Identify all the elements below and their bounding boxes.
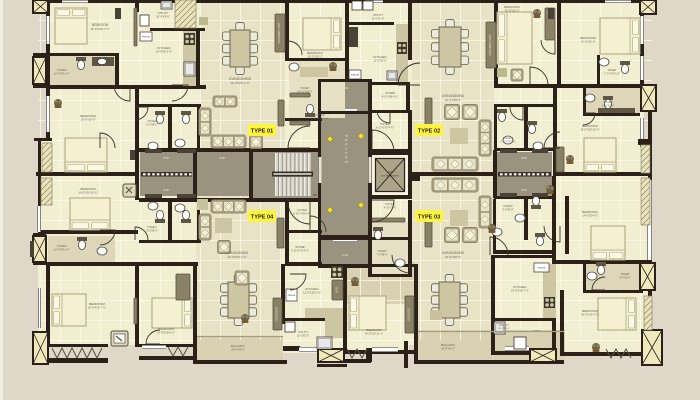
svg-text:6'-10 ½"X6'-4 ½": 6'-10 ½"X6'-4 ½": [293, 211, 311, 215]
svg-text:TYPE 04: TYPE 04: [251, 215, 274, 221]
svg-text:4'-3 ½"X6'-4 ½": 4'-3 ½"X6'-4 ½": [382, 94, 399, 98]
svg-text:TOILET: TOILET: [607, 68, 617, 72]
svg-text:TYPE 02: TYPE 02: [418, 129, 440, 135]
svg-text:16'-6"X10'-10 ½": 16'-6"X10'-10 ½": [78, 191, 97, 195]
svg-text:UTILITY: UTILITY: [298, 330, 309, 334]
svg-text:11'-0"X10'-2 ½": 11'-0"X10'-2 ½": [303, 291, 321, 295]
svg-text:16'-8"X10'-0 ½": 16'-8"X10'-0 ½": [157, 331, 175, 335]
svg-text:BEDROOM: BEDROOM: [89, 302, 105, 306]
svg-text:VOID: VOID: [521, 156, 527, 160]
svg-text:KITCHEN: KITCHEN: [513, 285, 526, 289]
svg-text:14'-0"X11'-3": 14'-0"X11'-3": [505, 9, 520, 13]
svg-text:10'-6"X10'-7 ½": 10'-6"X10'-7 ½": [511, 289, 529, 293]
svg-text:16'-4"X20'-0": 16'-4"X20'-0": [445, 98, 461, 102]
svg-text:HOB: HOB: [335, 287, 339, 293]
svg-text:16'-6"X10'-7 ½": 16'-6"X10'-7 ½": [90, 27, 109, 31]
svg-text:5'-3"X8'-0": 5'-3"X8'-0": [146, 123, 157, 126]
svg-text:16'-0"X10'-10 ½": 16'-0"X10'-10 ½": [580, 128, 599, 132]
svg-text:BEDROOM: BEDROOM: [158, 327, 174, 331]
svg-text:TOILET: TOILET: [503, 204, 513, 208]
svg-text:5'-3"X8'-0": 5'-3"X8'-0": [146, 229, 157, 232]
svg-text:FRIDGE: FRIDGE: [288, 295, 296, 297]
svg-text:KITCHEN: KITCHEN: [157, 46, 170, 50]
svg-text:7'-6"X8'-0": 7'-6"X8'-0": [376, 253, 387, 256]
svg-text:FOYER: FOYER: [380, 122, 390, 126]
svg-text:CROCKERY: CROCKERY: [275, 306, 279, 321]
svg-text:STORE: STORE: [295, 245, 305, 249]
svg-text:11'-0"X5'-0": 11'-0"X5'-0": [297, 334, 309, 337]
svg-text:FRIDGE: FRIDGE: [351, 75, 360, 77]
svg-text:TYPE 01: TYPE 01: [251, 129, 273, 135]
svg-text:4'-10"X7'-6": 4'-10"X7'-6": [384, 206, 397, 209]
svg-text:16'-0"X6'-0": 16'-0"X6'-0": [441, 347, 455, 351]
svg-text:10'-9"X9'-2 ½": 10'-9"X9'-2 ½": [156, 50, 172, 54]
svg-text:TOILET: TOILET: [147, 225, 157, 229]
svg-text:14'-0"X6'-0": 14'-0"X6'-0": [231, 348, 245, 352]
svg-text:BEDROOM: BEDROOM: [367, 328, 383, 332]
svg-text:TOILET: TOILET: [147, 119, 157, 123]
svg-text:UTILITY: UTILITY: [157, 11, 168, 15]
svg-text:TOILET: TOILET: [57, 68, 67, 72]
svg-text:16'-0"X10'-0": 16'-0"X10'-0": [81, 118, 96, 122]
svg-text:11'-0"X8'-6": 11'-0"X8'-6": [373, 59, 386, 63]
svg-text:TOILET: TOILET: [57, 244, 67, 248]
svg-text:BALCONY: BALCONY: [441, 343, 455, 347]
svg-text:BEDROOM: BEDROOM: [582, 210, 598, 214]
svg-text:KITCHEN: KITCHEN: [305, 287, 318, 291]
svg-text:KITCHEN: KITCHEN: [373, 55, 386, 59]
svg-text:5'-3"X8'-0": 5'-3"X8'-0": [502, 208, 513, 211]
svg-text:UTILITY: UTILITY: [373, 13, 384, 17]
svg-text:FOYER: FOYER: [297, 208, 307, 212]
svg-text:STORE: STORE: [385, 91, 395, 95]
svg-text:14'-0"X11'-0": 14'-0"X11'-0": [581, 40, 596, 44]
svg-text:FRIDGE: FRIDGE: [537, 268, 546, 270]
svg-text:BEDROOM: BEDROOM: [307, 51, 323, 55]
svg-text:PASSAGE: PASSAGE: [344, 135, 348, 165]
svg-text:6'-10 ½"X7'-4 ½": 6'-10 ½"X7'-4 ½": [376, 125, 394, 129]
svg-text:VOID: VOID: [163, 188, 169, 192]
svg-text:LIFT: LIFT: [388, 171, 393, 174]
svg-text:VOID: VOID: [163, 156, 169, 160]
svg-text:TOILET: TOILET: [300, 86, 310, 90]
svg-text:6'-10 ½"X6'-4 ½": 6'-10 ½"X6'-4 ½": [291, 248, 309, 252]
svg-text:14'-4"X20'-1 ½": 14'-4"X20'-1 ½": [227, 255, 246, 259]
svg-text:FOYER: FOYER: [385, 202, 395, 206]
svg-text:8'-0"X6'-6": 8'-0"X6'-6": [620, 277, 631, 279]
svg-text:UTILITY: UTILITY: [499, 323, 509, 327]
svg-text:10'-6"X3'-0": 10'-6"X3'-0": [498, 328, 510, 330]
svg-text:TOILET: TOILET: [620, 272, 630, 276]
svg-text:BEDROOM: BEDROOM: [582, 309, 598, 313]
svg-text:10'-9"X3'-6": 10'-9"X3'-6": [156, 15, 170, 19]
svg-text:11'-0"X2'-6": 11'-0"X2'-6": [372, 17, 384, 20]
svg-text:11'-2"X13'-2": 11'-2"X13'-2": [308, 55, 323, 59]
svg-text:BEDROOM: BEDROOM: [504, 5, 520, 9]
svg-text:VOID: VOID: [219, 156, 225, 160]
svg-text:CROCKERY UNIT: CROCKERY UNIT: [488, 34, 492, 56]
svg-text:14'-4"X20'-1 ½": 14'-4"X20'-1 ½": [230, 81, 249, 85]
svg-text:10'-0"X5'-0": 10'-0"X5'-0": [602, 104, 615, 107]
svg-text:10'-0"X5'-1 ½": 10'-0"X5'-1 ½": [54, 248, 70, 252]
svg-text:LUGGAGE: LUGGAGE: [407, 308, 411, 321]
svg-text:UP: UP: [313, 193, 317, 197]
svg-text:TOILET: TOILET: [377, 249, 387, 253]
svg-text:8'-5 ½"X10'-4": 8'-5 ½"X10'-4": [297, 89, 312, 93]
svg-text:VOID: VOID: [342, 253, 349, 257]
svg-text:BEDROOM: BEDROOM: [80, 114, 96, 118]
svg-text:BEDROOM: BEDROOM: [582, 124, 598, 128]
svg-text:CROCKERY UNIT: CROCKERY UNIT: [277, 22, 281, 44]
svg-text:BEDROOM: BEDROOM: [580, 36, 596, 40]
svg-text:BEDROOM: BEDROOM: [80, 187, 96, 191]
svg-text:16'-0"X10'-7 ½": 16'-0"X10'-7 ½": [581, 313, 599, 317]
svg-text:BALCONY: BALCONY: [231, 344, 245, 348]
svg-text:(SIX PASSENGER): (SIX PASSENGER): [381, 175, 399, 178]
svg-text:TYPE 03: TYPE 03: [418, 215, 440, 221]
svg-text:14'-0"X12'-11 ½": 14'-0"X12'-11 ½": [365, 332, 384, 336]
svg-text:14'-0"X14'-0": 14'-0"X14'-0": [583, 214, 598, 218]
svg-text:FRIDGE: FRIDGE: [142, 37, 151, 39]
svg-text:10'-0"X5'-1 ½": 10'-0"X5'-1 ½": [54, 72, 70, 76]
svg-text:VOID: VOID: [521, 188, 527, 192]
svg-text:16'-6"X10'-7 ½": 16'-6"X10'-7 ½": [88, 306, 106, 310]
svg-text:16'-4"X20'-0": 16'-4"X20'-0": [445, 255, 461, 259]
svg-text:TOILET: TOILET: [603, 100, 613, 104]
svg-text:6'-10 ½"X7'-6 ½": 6'-10 ½"X7'-6 ½": [311, 116, 329, 120]
svg-text:TOILET: TOILET: [503, 136, 513, 140]
